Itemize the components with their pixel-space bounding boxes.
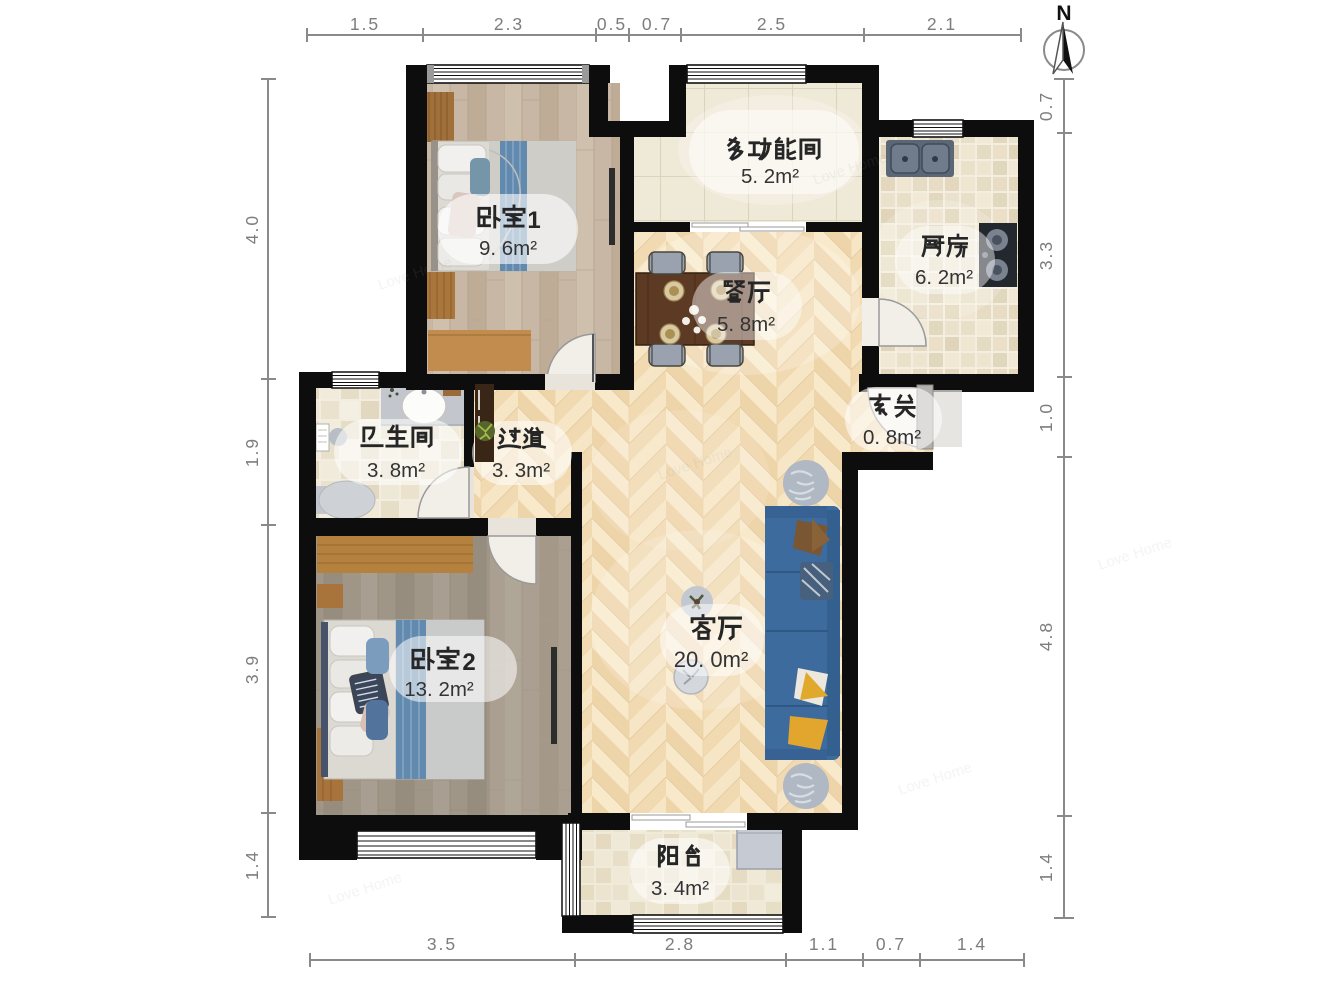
svg-text:5. 8m²: 5. 8m² [717, 313, 775, 336]
svg-text:2.8: 2.8 [665, 934, 695, 954]
svg-text:0.7: 0.7 [642, 14, 672, 34]
svg-text:0.5: 0.5 [597, 14, 627, 34]
svg-text:1.0: 1.0 [1036, 402, 1056, 432]
svg-text:3. 3m²: 3. 3m² [492, 459, 550, 482]
svg-text:20. 0m²: 20. 0m² [674, 647, 749, 672]
svg-text:13. 2m²: 13. 2m² [404, 678, 474, 701]
svg-text:1: 1 [527, 207, 540, 234]
svg-text:0. 8m²: 0. 8m² [863, 426, 921, 449]
svg-text:4.0: 4.0 [242, 214, 262, 244]
svg-text:0.7: 0.7 [1036, 91, 1056, 121]
svg-text:1.1: 1.1 [809, 934, 839, 954]
svg-text:2.3: 2.3 [494, 14, 524, 34]
svg-text:1.4: 1.4 [957, 934, 987, 954]
svg-text:2: 2 [462, 649, 475, 676]
svg-text:9. 6m²: 9. 6m² [479, 237, 537, 260]
svg-text:2.5: 2.5 [757, 14, 787, 34]
svg-text:3.9: 3.9 [242, 654, 262, 684]
svg-text:4.8: 4.8 [1036, 621, 1056, 651]
svg-text:N: N [1056, 2, 1071, 25]
svg-text:3. 8m²: 3. 8m² [367, 459, 425, 482]
svg-text:3.5: 3.5 [427, 934, 457, 954]
svg-text:1.4: 1.4 [242, 850, 262, 880]
svg-text:2.1: 2.1 [927, 14, 957, 34]
svg-text:1.9: 1.9 [242, 437, 262, 467]
svg-text:1.5: 1.5 [350, 14, 380, 34]
svg-text:3.3: 3.3 [1036, 240, 1056, 270]
svg-text:0.7: 0.7 [876, 934, 906, 954]
svg-text:6. 2m²: 6. 2m² [915, 266, 973, 289]
svg-text:5. 2m²: 5. 2m² [741, 165, 799, 188]
svg-text:3. 4m²: 3. 4m² [651, 877, 709, 900]
svg-text:1.4: 1.4 [1036, 852, 1056, 882]
